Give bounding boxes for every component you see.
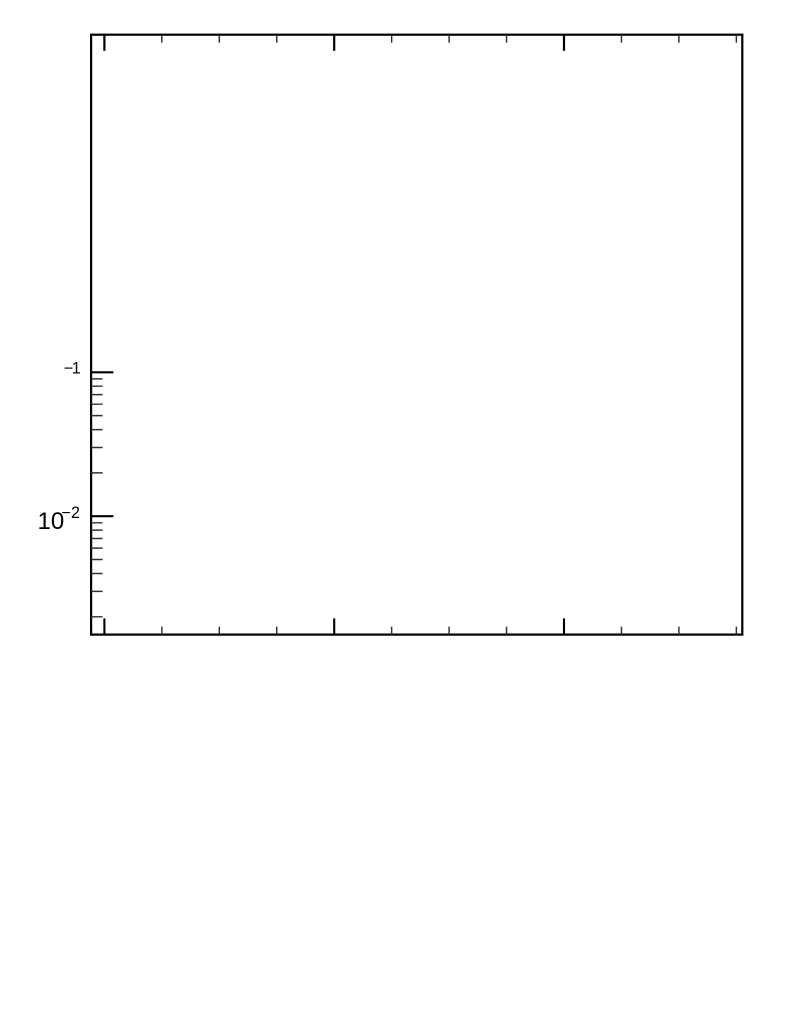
- svg-text:−1: −1: [64, 359, 81, 377]
- svg-text:10: 10: [37, 508, 64, 535]
- svg-text:−2: −2: [62, 504, 80, 522]
